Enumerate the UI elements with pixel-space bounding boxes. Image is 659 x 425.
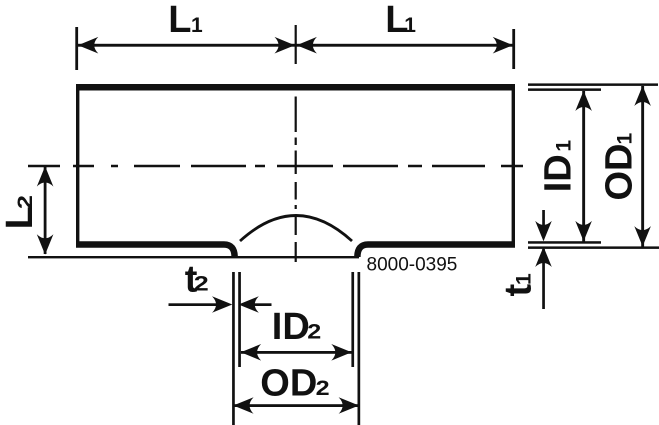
svg-text:8000-0395: 8000-0395 [367,255,458,276]
svg-text:OD: OD [260,363,317,405]
svg-text:ID: ID [272,306,310,348]
svg-text:1: 1 [513,273,536,285]
svg-text:1: 1 [553,140,576,152]
svg-text:1: 1 [404,14,416,37]
svg-text:1: 1 [614,133,637,145]
svg-text:2: 2 [194,273,209,296]
svg-text:L: L [168,0,191,41]
svg-text:2: 2 [14,195,37,209]
svg-text:2: 2 [307,321,321,344]
svg-text:1: 1 [191,14,203,37]
svg-text:OD: OD [599,144,641,201]
svg-text:2: 2 [316,377,330,400]
svg-text:ID: ID [538,154,580,192]
